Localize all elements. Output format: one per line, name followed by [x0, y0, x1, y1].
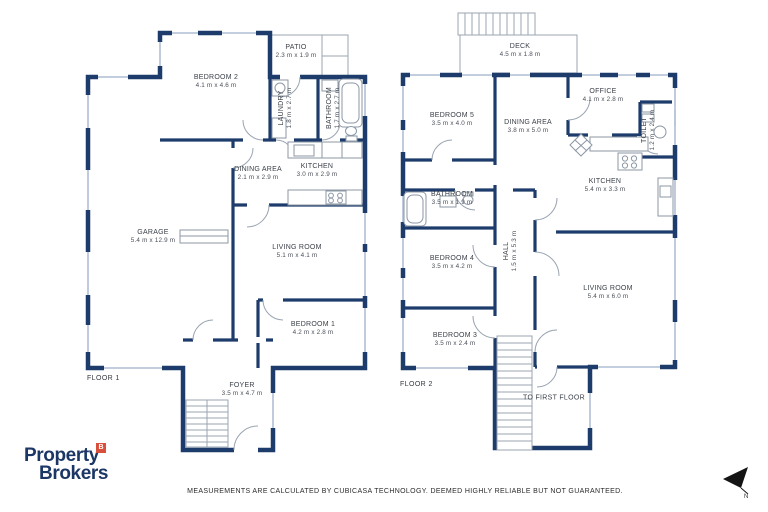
room-label-bedroom-4: BEDROOM 4 3.5 m x 4.2 m — [430, 254, 474, 272]
room-label-toilet: TOILET 1.2 m x 2.4 m — [640, 110, 658, 151]
svg-text:N: N — [744, 494, 748, 500]
measurement-disclaimer: MEASUREMENTS ARE CALCULATED BY CUBICASA … — [187, 488, 623, 495]
room-label-bedroom-5: BEDROOM 5 3.5 m x 4.0 m — [430, 111, 474, 129]
room-label-bathroom-f2: BATHROOM 3.5 m x 1.9 m — [431, 190, 473, 208]
room-label-garage: GARAGE 5.4 m x 12.9 m — [131, 228, 175, 246]
room-label-dining-f1: DINING AREA 2.1 m x 2.9 m — [234, 165, 282, 183]
floor2-plan — [403, 13, 675, 450]
kitchen-sink-icon — [660, 186, 671, 197]
room-label-deck: DECK 4.5 m x 1.8 m — [500, 42, 541, 60]
floor2-stairs — [497, 336, 532, 450]
floorplan-page: N BEDROOM 2 4.1 m x 4.6 m PATIO 2.3 m x … — [0, 0, 768, 512]
to-first-floor-note: TO FIRST FLOOR — [523, 395, 585, 402]
room-label-living-f2: LIVING ROOM 5.4 m x 6.0 m — [583, 284, 632, 302]
toilet-icon — [346, 127, 357, 136]
logo-badge-icon: B — [96, 443, 106, 453]
room-label-bedroom-1: BEDROOM 1 4.2 m x 2.8 m — [291, 320, 335, 338]
room-label-kitchen-f1: KITCHEN 3.0 m x 2.9 m — [297, 162, 338, 180]
floor1-stairs — [186, 400, 228, 447]
floor1-label: FLOOR 1 — [87, 375, 120, 382]
room-label-living-f1: LIVING ROOM 5.1 m x 4.1 m — [272, 243, 321, 261]
property-brokers-logo: Property B Brokers — [24, 448, 134, 481]
room-label-dining-f2: DINING AREA 3.8 m x 5.0 m — [504, 118, 552, 136]
kitchen-sink-icon — [294, 145, 314, 156]
room-label-kitchen-f2: KITCHEN 5.4 m x 3.3 m — [585, 177, 626, 195]
floorplan-linework: N — [0, 0, 768, 512]
room-label-bathroom-f1: BATHROOM 1.7 m x 2.7 m — [325, 87, 343, 129]
room-label-bedroom-2: BEDROOM 2 4.1 m x 4.6 m — [194, 73, 238, 91]
logo-text-brokers: Brokers — [39, 466, 134, 481]
room-label-bedroom-3: BEDROOM 3 3.5 m x 2.4 m — [433, 331, 477, 349]
room-label-hall: HALL 1.5 m x 5.3 m — [502, 231, 520, 272]
floor2-label: FLOOR 2 — [400, 381, 433, 388]
logo-text-property: Property — [24, 448, 99, 463]
room-label-foyer: FOYER 3.5 m x 4.7 m — [222, 381, 263, 399]
room-label-patio: PATIO 2.3 m x 1.9 m — [276, 43, 317, 61]
stove-icon — [618, 153, 642, 170]
north-arrow-icon: N — [723, 467, 748, 500]
room-label-laundry: LAUNDRY 1.8 m x 2.7 m — [277, 88, 295, 129]
room-label-office: OFFICE 4.1 m x 2.8 m — [583, 87, 624, 105]
